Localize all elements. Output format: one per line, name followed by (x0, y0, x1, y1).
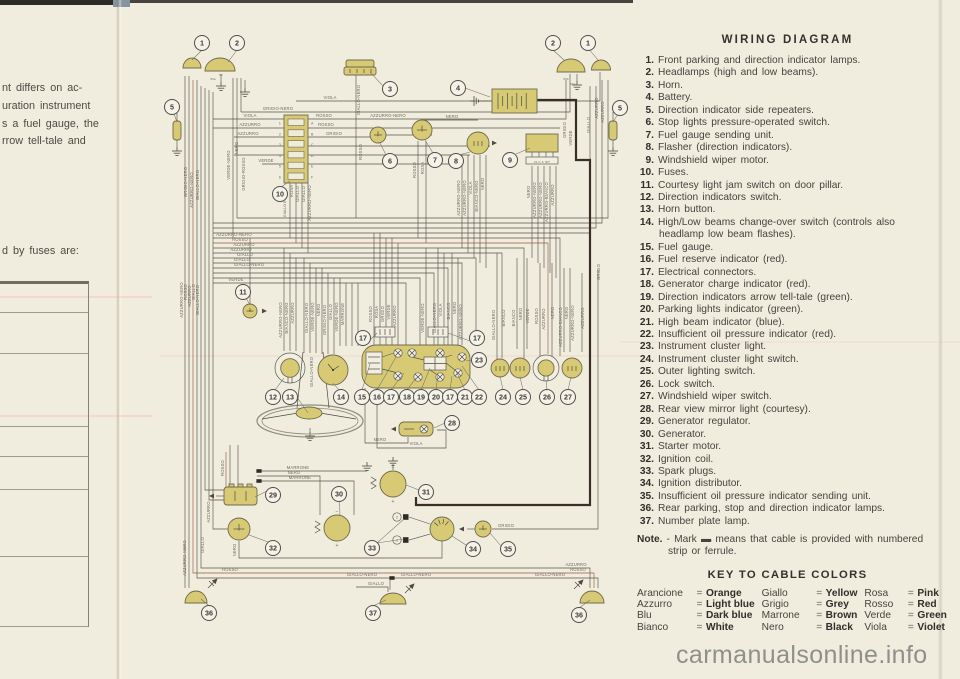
wire-color-label: VERDE (228, 277, 243, 282)
cable-key-entry: Giallo=Yellow (762, 588, 858, 599)
legend-item-text: Insufficient oil pressure indicator (red… (658, 329, 836, 340)
legend-item: 15.Fuel gauge. (637, 242, 938, 254)
svg-text:17: 17 (387, 393, 395, 402)
svg-text:A: A (311, 122, 314, 126)
callout-leader (249, 535, 268, 542)
wire-color-label: AZZURRO-BIANCO (544, 182, 549, 222)
front-lamp-left-1 (183, 58, 201, 68)
manual-page: nt differs on ac-uration instruments a f… (0, 0, 960, 679)
legend-item-text: Headlamps (high and low beams). (658, 67, 818, 78)
svg-text:15: 15 (358, 393, 366, 402)
legend-item-text: Outer lighting switch. (658, 366, 755, 377)
legend-item-text: Windshield wiper motor. (658, 155, 769, 166)
cable-key-entry: Marrone=Brown (762, 610, 858, 621)
spark-plug-1: 1 (393, 536, 409, 544)
wire-color-label: ROSSO (534, 307, 539, 323)
wire-color-label: ROSA (374, 306, 379, 319)
cable-key-table: Arancione=OrangeAzzurro=Light blueBlu=Da… (637, 588, 938, 633)
legend-item: 1.Front parking and direction indicator … (637, 55, 938, 67)
svg-text:−: − (335, 509, 338, 515)
wire-color-label: AZZURRO (237, 131, 259, 136)
left-cutoff-table (0, 281, 89, 627)
table-row (0, 427, 88, 457)
legend-item-number: 33. (637, 466, 654, 478)
wire-color-label: AZZURRO-NERO (458, 304, 463, 340)
svg-text:−: − (391, 465, 394, 471)
table-row (0, 557, 88, 627)
wire-color-label: GIALLO (301, 185, 306, 202)
table-row (0, 284, 88, 313)
legend-item-number: 29. (637, 416, 654, 428)
wire-color-label: NERO (232, 543, 237, 556)
lamp-arrow-icon (405, 584, 414, 593)
legend-item-number: 8. (637, 142, 654, 154)
ground-icon (305, 432, 315, 440)
wire-color-label: GIALLO-NERO (356, 84, 361, 115)
svg-text:14: 14 (337, 393, 345, 402)
svg-text:37: 37 (369, 609, 377, 618)
horn-3 (344, 60, 376, 75)
legend-item-number: 35. (637, 491, 654, 503)
left-column-cutoff-text: nt differs on ac-uration instruments a f… (2, 80, 99, 151)
callout-7: 7 (428, 153, 443, 168)
callout-leader (406, 485, 419, 490)
callout-30: 30 (332, 487, 347, 502)
callout-leader (568, 377, 571, 390)
cable-key-text: Giallo (762, 588, 813, 599)
svg-text:1: 1 (279, 122, 281, 126)
wire-color-label: NERO (564, 306, 569, 319)
legend-item-number: 18. (637, 279, 654, 291)
wire-color-label: NERO (452, 301, 457, 314)
wire (197, 80, 598, 588)
wire (205, 88, 224, 490)
legend-item: 22.Insufficient oil pressure indicator (… (637, 329, 938, 341)
wire-color-label: VERDE-NERO (310, 302, 315, 332)
wire-color-label: VIOLA (409, 441, 422, 446)
legend-item-text: Insufficient oil pressure indicator send… (658, 491, 871, 502)
cable-key-text: = (813, 588, 826, 599)
wire-color-label: VERDE (568, 130, 573, 145)
callout-28: 28 (445, 416, 460, 431)
svg-text:5: 5 (279, 165, 281, 169)
callout-35: 35 (501, 542, 516, 557)
legend-item-number: 24. (637, 354, 654, 366)
fusebox-10: 1A2B3C4D5E6F (279, 115, 314, 183)
cable-key-text: Blu (637, 610, 693, 621)
cable-key-text: White (706, 622, 734, 633)
legend-item-number: 31. (637, 441, 654, 453)
wire-red (213, 243, 548, 354)
callout-leader (452, 536, 466, 545)
starter-31: −+ (371, 465, 406, 505)
callout-8: 8 (449, 154, 464, 169)
ground-icon (608, 147, 618, 155)
wiper-switch-27 (562, 358, 582, 378)
cable-key-text: Nero (762, 622, 813, 633)
legend-item-text: Fuel gauge. (658, 242, 713, 253)
wire-color-label: GIALLO-NERO (234, 262, 265, 267)
svg-text:1: 1 (200, 39, 204, 48)
callout-leader (370, 72, 383, 86)
callout-26: 26 (540, 390, 555, 405)
svg-text:+: + (391, 499, 394, 505)
arrow-icon (209, 494, 214, 499)
svg-text:29: 29 (269, 491, 277, 500)
cable-key-text: Verde (864, 610, 904, 621)
svg-text:33: 33 (368, 544, 376, 553)
legend-item-number: 28. (637, 404, 654, 416)
legend-item-number: 7. (637, 130, 654, 142)
wire-color-label: NERO (550, 306, 555, 319)
svg-text:6: 6 (388, 157, 392, 166)
cable-key-entry: Bianco=White (637, 622, 755, 633)
legend-item: 31.Starter motor. (637, 441, 938, 453)
callout-leader (500, 376, 503, 390)
wire-color-label: ROSA (289, 185, 294, 198)
wire-color-label: AZZURRO-NERO (456, 180, 461, 216)
callout-19: 19 (414, 390, 429, 405)
ground-icon (172, 147, 182, 155)
spark-plug-2: 2 (393, 513, 409, 521)
flasher-8 (467, 132, 489, 154)
legend-item: 10.Fuses. (637, 167, 938, 179)
ground-icon (240, 88, 250, 96)
wire-color-label: ROSSO (220, 459, 225, 475)
wire-color-label: AZZURRO-NERO (278, 302, 283, 338)
wire (213, 238, 560, 356)
cable-key-text: Pink (917, 588, 939, 599)
wire-color-label: 56b (563, 77, 569, 81)
svg-text:26: 26 (543, 393, 551, 402)
svg-text:22: 22 (475, 393, 483, 402)
fuel-sender-7 (412, 120, 432, 140)
cable-key-text: Viola (864, 622, 904, 633)
svg-text:21: 21 (461, 393, 469, 402)
cluster-light-switch-24 (491, 359, 509, 377)
legend-item-text: Rear view mirror light (courtesy). (658, 404, 811, 415)
svg-text:+: + (335, 543, 338, 549)
legend-item-number: 23. (637, 341, 654, 353)
legend-item: 33.Spark plugs. (637, 466, 938, 478)
cable-key-text: Grey (826, 599, 849, 610)
legend-item-number: 21. (637, 317, 654, 329)
wire-color-label: ROSSO (316, 113, 332, 118)
legend-item: 21.High beam indicator (blue). (637, 317, 938, 329)
wire-color-label: VERDE-NERO (334, 302, 339, 332)
wire-color-label: VERDE-NERO (226, 150, 231, 180)
legend-item-number: 37. (637, 516, 654, 528)
callout-36: 36 (202, 606, 217, 621)
callout-leader (520, 377, 523, 390)
callout-4: 4 (451, 81, 466, 96)
legend-item-text: Battery. (658, 92, 692, 103)
oil-sender-35 (475, 521, 491, 537)
legend-item: 35.Insufficient oil pressure indicator s… (637, 491, 938, 503)
cable-key-text: = (904, 622, 917, 633)
legend-item-text: Fuel reserve indicator (red). (658, 254, 787, 265)
legend-item: 27.Windshield wiper switch. (637, 391, 938, 403)
cable-key-text: Grigio (762, 599, 813, 610)
distributor-34 (430, 517, 454, 541)
cable-key-entry: Nero=Black (762, 622, 858, 633)
legend-title: WIRING DIAGRAM (637, 34, 938, 46)
legend-item-number: 1. (637, 55, 654, 67)
lamp-arrow-icon (208, 579, 217, 588)
cable-key-text: Bianco (637, 622, 693, 633)
wire-color-label: GIALLO (295, 185, 300, 202)
callout-17: 17 (470, 331, 485, 346)
svg-text:9: 9 (508, 156, 512, 165)
instrument-cluster (362, 345, 470, 388)
wire-color-label: AZZURRO (541, 308, 546, 330)
arrow-icon (492, 141, 497, 146)
legend-item: 9.Windshield wiper motor. (637, 155, 938, 167)
legend-item: 14.High/Low beams change-over switch (co… (637, 217, 938, 242)
callout-9: 9 (503, 153, 518, 168)
legend-item: 11.Courtesy light jam switch on door pil… (637, 180, 938, 192)
callout-2: 2 (546, 36, 561, 51)
wire-color-label: MARRONE (340, 303, 345, 326)
wire-color-label: AZZURRO-NERO (532, 182, 537, 218)
callout-34: 34 (466, 542, 481, 557)
table-row (0, 490, 88, 557)
svg-text:2: 2 (235, 39, 239, 48)
callout-12: 12 (266, 390, 281, 405)
svg-text:28: 28 (448, 419, 456, 428)
wire-color-label: GIALLO-NERO (401, 572, 432, 577)
wire-color-label: VERDE (525, 308, 530, 323)
legend-item-text: Direction indicator side repeaters. (658, 105, 814, 116)
svg-text:23: 23 (475, 356, 483, 365)
cable-key-text: = (813, 610, 826, 621)
wire-color-label: VIOLA (438, 303, 443, 316)
cable-key-text: Red (917, 599, 936, 610)
legend-list: 1.Front parking and direction indicator … (637, 55, 938, 528)
callout-leader (553, 50, 564, 60)
ferrule-mark-icon (256, 469, 261, 473)
wire-color-label: VERDE (386, 304, 391, 319)
wire-color-label: AZZURRO (600, 101, 605, 123)
legend-item-text: Lock switch. (658, 379, 715, 390)
regulator-29 (224, 484, 257, 505)
legend-item-text: Parking lights indicator (green). (658, 304, 803, 315)
legend-item-number: 6. (637, 117, 654, 129)
legend-item-number: 9. (637, 155, 654, 167)
table-row (0, 313, 88, 354)
wire-color-label: AZZURRO-NERO (182, 540, 187, 576)
svg-text:2: 2 (551, 39, 555, 48)
wire (409, 517, 430, 524)
svg-text:13: 13 (286, 393, 294, 402)
wire-color-label: MARRONE (289, 475, 312, 480)
svg-text:4: 4 (456, 84, 460, 93)
legend-item-number: 10. (637, 167, 654, 179)
svg-text:27: 27 (564, 393, 572, 402)
beam-switch-14 (318, 355, 348, 385)
wire-color-label: NERO (446, 114, 459, 119)
arrow-icon (262, 309, 267, 314)
legend-item: 25.Outer lighting switch. (637, 366, 938, 378)
svg-text:18: 18 (403, 393, 411, 402)
wire-color-label: AZZURRO-NERO (370, 113, 406, 118)
wire-color-label: VIOLA (243, 113, 256, 118)
callout-37: 37 (366, 606, 381, 621)
wire-color-label: ROSSO (358, 143, 363, 159)
legend-item-text: Stop lights pressure-operated switch. (658, 117, 830, 128)
callout-21: 21 (458, 390, 473, 405)
callout-17: 17 (356, 331, 371, 346)
note-text: - Mark ▬ means that cable is provided wi… (666, 534, 923, 557)
callout-23: 23 (472, 353, 487, 368)
legend-item: 16.Fuel reserve indicator (red). (637, 254, 938, 266)
callout-2: 2 (230, 36, 245, 51)
wire-color-label: ROSSO (222, 567, 238, 572)
callout-20: 20 (429, 390, 444, 405)
cable-key-entry: Blu=Dark blue (637, 610, 755, 621)
cable-key-text: = (813, 599, 826, 610)
legend-item-number: 14. (637, 217, 654, 229)
wire-color-label: AZZURRO-NERO (538, 182, 543, 218)
svg-text:31: 31 (422, 488, 430, 497)
wiring-diagram: 1A2B3C4D5E6F−+−+21GRIGIO-NEROAZZURRO-NER… (160, 25, 640, 640)
cable-key-text: = (693, 588, 706, 599)
headlamp-left-2 (205, 58, 235, 71)
svg-text:17: 17 (473, 334, 481, 343)
legend-item-number: 20. (637, 304, 654, 316)
cable-key-entry: Viola=Violet (864, 622, 946, 633)
callout-leader (228, 50, 237, 62)
lamp-arrow-icon (574, 580, 583, 589)
wire-color-label: AZZURRO (206, 501, 211, 523)
legend-item-text: Flasher (direction indicators). (658, 142, 792, 153)
legend-item-text: Fuel gauge sending unit. (658, 130, 774, 141)
legend-item: 12.Direction indicators switch. (637, 192, 938, 204)
lock-switch-26 (533, 355, 559, 381)
wire-color-label: GRIGIO-NERO (183, 166, 188, 197)
table-row (0, 457, 88, 490)
legend-item-text: Starter motor. (658, 441, 721, 452)
cable-key-entry: Rosa=Pink (864, 588, 946, 599)
svg-text:16: 16 (373, 393, 381, 402)
connector-17-right (428, 327, 448, 337)
callout-31: 31 (419, 485, 434, 500)
callout-15: 15 (355, 390, 370, 405)
wire-color-label: NERO (374, 437, 387, 442)
front-lamp-right-1 (592, 60, 611, 70)
cable-key-text: Green (917, 610, 946, 621)
cable-key-text: Brown (826, 610, 858, 621)
wire-color-label: 31 C F INT (534, 160, 550, 164)
rear-lamp-right-36 (580, 591, 604, 603)
legend-item-text: Generator regulator. (658, 416, 751, 427)
legend-item-number: 25. (637, 366, 654, 378)
legend-item: 13.Horn button. (637, 204, 938, 216)
callout-6: 6 (383, 154, 398, 169)
cable-key-entry: Grigio=Grey (762, 599, 858, 610)
svg-text:17: 17 (359, 334, 367, 343)
cable-key-text: = (904, 588, 917, 599)
wire-color-label: GRIGIO-NERO (322, 304, 327, 335)
svg-text:12: 12 (269, 393, 277, 402)
legend-item-number: 27. (637, 391, 654, 403)
cable-key-column: Giallo=YellowGrigio=GreyMarrone=BrownNer… (762, 588, 858, 633)
svg-text:C: C (311, 143, 314, 147)
note-label: Note. (637, 534, 662, 545)
legend-item: 5.Direction indicator side repeaters. (637, 105, 938, 117)
legend-item: 4.Battery. (637, 92, 938, 104)
left-text-line: nt differs on ac- (2, 80, 99, 98)
svg-text:3: 3 (388, 85, 392, 94)
wire-color-label: GIALLO (200, 536, 205, 553)
door-switch-11 (243, 304, 257, 318)
legend-item-text: Rear parking, stop and direction indicat… (658, 503, 885, 514)
cable-key-text: = (904, 610, 917, 621)
callout-leader (275, 378, 284, 390)
callout-18: 18 (400, 390, 415, 405)
callout-leader (546, 380, 547, 390)
svg-text:30: 30 (335, 490, 343, 499)
cable-key-entry: Rosso=Red (864, 599, 946, 610)
callout-22: 22 (472, 390, 487, 405)
wire-color-label: AZZURRO (239, 122, 261, 127)
ferrule-mark-icon (256, 479, 261, 483)
callout-33: 33 (365, 541, 380, 556)
wire-color-label: BIANCO (511, 309, 516, 327)
wire-color-label: ROSSO (318, 122, 334, 127)
wire (356, 587, 388, 592)
legend-item-number: 3. (637, 80, 654, 92)
cable-key-text: Marrone (762, 610, 813, 621)
ground-icon (216, 82, 226, 90)
svg-text:F: F (311, 176, 314, 180)
page-right-crease (938, 0, 943, 679)
side-repeater-left-5 (173, 121, 181, 140)
legend-item: 28.Rear view mirror light (courtesy). (637, 404, 938, 416)
callout-leader (380, 143, 386, 155)
legend-item: 32.Ignition coil. (637, 454, 938, 466)
wire-color-label: AZZURRO-NERO (462, 180, 467, 216)
legend-item: 20.Parking lights indicator (green). (637, 304, 938, 316)
legend-item-text: Horn. (658, 80, 683, 91)
table-row (0, 354, 88, 427)
callout-1: 1 (581, 36, 596, 51)
legend-item-number: 26. (637, 379, 654, 391)
arrow-icon (459, 527, 464, 532)
legend-item: 2.Headlamps (high and low beams). (637, 67, 938, 79)
legend-item-number: 12. (637, 192, 654, 204)
legend-item-text: Ignition coil. (658, 454, 713, 465)
battery-4 (492, 89, 537, 113)
callout-5: 5 (165, 100, 180, 115)
side-repeater-right-5 (609, 121, 617, 140)
page-fold-crease (116, 0, 122, 679)
legend-item-text: Generator. (658, 429, 706, 440)
legend-item: 3.Horn. (637, 80, 938, 92)
legend-item: 29.Generator regulator. (637, 416, 938, 428)
wire-color-label: BIANCO-NERO (284, 302, 289, 334)
legend-item-number: 11. (637, 180, 654, 192)
legend-item-text: High beam indicator (blue). (658, 317, 785, 328)
cable-key-column: Arancione=OrangeAzzurro=Light blueBlu=Da… (637, 588, 755, 633)
wire-color-label: 56 (219, 73, 223, 77)
legend-item-number: 30. (637, 429, 654, 441)
wire-color-label: AZZURRO-NERO (189, 172, 194, 208)
wire-color-label: GIALLO-NERO (309, 356, 314, 387)
headlamp-right-2 (557, 59, 585, 72)
wire-color-label: NERO (526, 185, 531, 198)
legend-item-text: Horn button. (658, 204, 715, 215)
